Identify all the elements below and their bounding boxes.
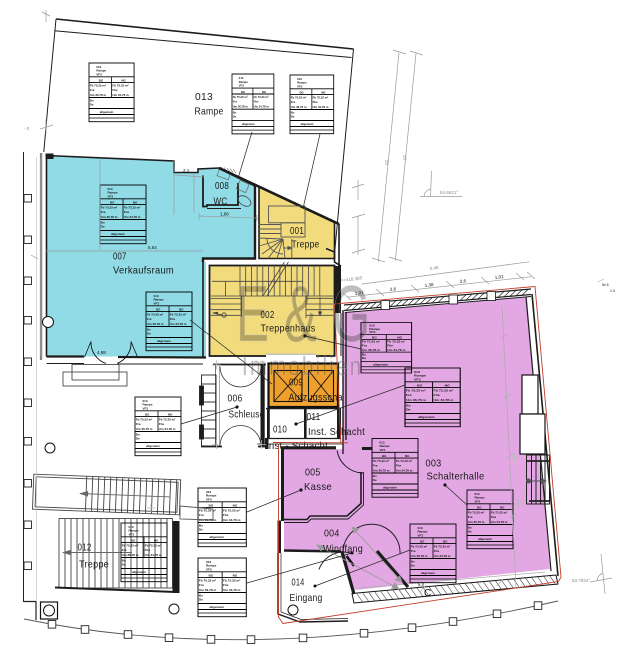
- svg-text:005: 005: [305, 467, 321, 479]
- svg-text:2,1: 2,1: [183, 168, 190, 173]
- svg-text:001: 001: [290, 225, 304, 237]
- svg-text:Verkaufsraum: Verkaufsraum: [113, 264, 174, 276]
- svg-text:5x 5: 5x 5: [602, 283, 609, 287]
- svg-text:5,8: 5,8: [418, 581, 425, 587]
- svg-text:2,6: 2,6: [460, 278, 467, 284]
- svg-text:63.7934°: 63.7934°: [572, 578, 590, 583]
- svg-text:-.0: -.0: [24, 126, 30, 131]
- svg-text:014: 014: [292, 577, 305, 589]
- svg-text:Schleuse: Schleuse: [229, 409, 265, 421]
- svg-text:2,6: 2,6: [390, 286, 397, 292]
- svg-text:004: 004: [324, 528, 340, 540]
- svg-text:Eingang: Eingang: [290, 592, 323, 604]
- svg-text:C: C: [424, 588, 431, 599]
- svg-text:1,88: 1,88: [220, 212, 229, 217]
- svg-text:008: 008: [215, 180, 229, 192]
- svg-text:Rampe: Rampe: [195, 106, 224, 118]
- svg-text:012: 012: [78, 542, 92, 554]
- svg-text:WC: WC: [214, 196, 228, 208]
- svg-text:Windfang: Windfang: [323, 543, 363, 555]
- svg-text:Treppe: Treppe: [79, 559, 109, 571]
- svg-text:Immobilien: Immobilien: [242, 352, 363, 381]
- svg-text:5,64: 5,64: [148, 245, 157, 250]
- svg-text:84.6621°: 84.6621°: [440, 190, 458, 195]
- svg-text:011: 011: [307, 411, 321, 423]
- svg-text:007: 007: [113, 251, 127, 263]
- svg-text:Schalterhalle: Schalterhalle: [427, 471, 485, 483]
- svg-text:1.0: 1.0: [610, 289, 615, 293]
- svg-text:003: 003: [426, 457, 442, 469]
- svg-text:010: 010: [273, 423, 287, 435]
- svg-text:Kasse: Kasse: [304, 481, 332, 493]
- svg-text:013: 013: [195, 91, 213, 103]
- svg-text:Inst. Schacht: Inst. Schacht: [308, 426, 365, 438]
- svg-text:Inst.- Schacht: Inst.- Schacht: [266, 440, 328, 452]
- svg-text:4,88: 4,88: [97, 350, 106, 355]
- svg-text:006: 006: [228, 393, 243, 405]
- svg-text:E&G: E&G: [236, 270, 385, 359]
- svg-text:Treppe: Treppe: [292, 239, 320, 251]
